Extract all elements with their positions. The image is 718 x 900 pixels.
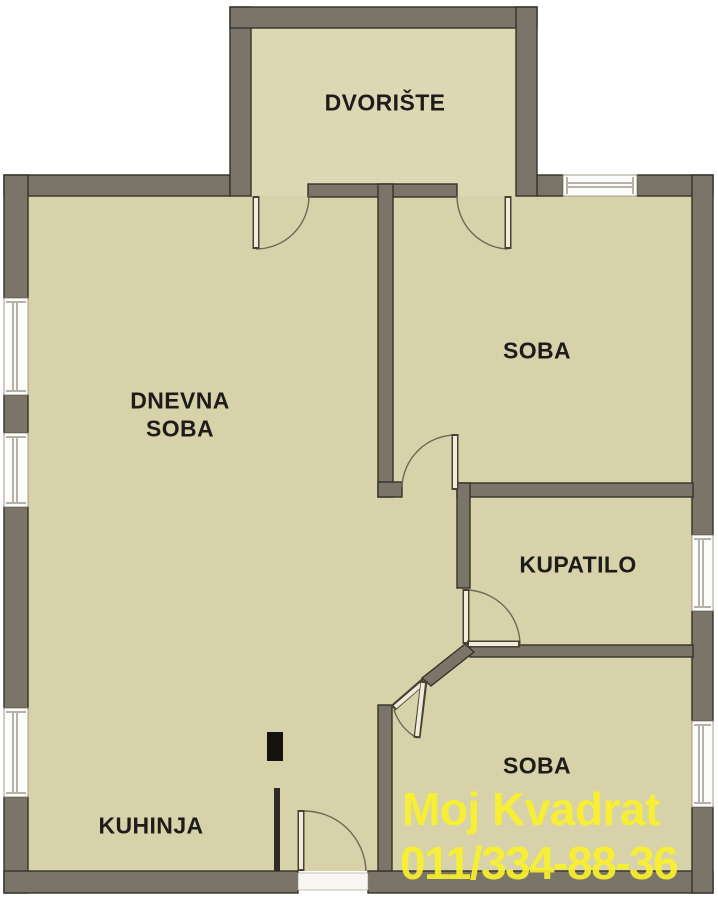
flue-marker — [267, 732, 283, 761]
wall-courtyard-top — [230, 7, 537, 28]
watermark-company: Moj Kvadrat — [402, 786, 660, 832]
floor-main — [25, 195, 692, 871]
label-soba-bottom: SOBA — [503, 753, 571, 780]
wall-soba-bottom-left — [378, 705, 392, 871]
label-soba-top: SOBA — [503, 338, 571, 365]
wall-left-pier — [4, 395, 28, 433]
floor-plan-drawing — [0, 0, 718, 900]
window-right-2 — [692, 721, 713, 807]
window-top — [563, 175, 637, 196]
wall-left-b — [4, 507, 28, 708]
wall-right-pier — [692, 611, 713, 721]
wall-top-right-a — [537, 175, 563, 196]
window-left-3 — [4, 708, 28, 797]
wall-soba-kupatilo — [457, 483, 693, 497]
floors-layer — [25, 28, 692, 871]
window-left-2 — [4, 433, 28, 507]
label-dnevna-soba-line1: DNEVNA — [130, 388, 230, 415]
watermark-phone: 011/334-88-36 — [400, 840, 677, 886]
window-left-1 — [4, 298, 28, 395]
wall-courtyard-right — [516, 7, 537, 196]
label-dvoriste: DVORIŠTE — [325, 90, 446, 117]
wall-kupatilo-left — [457, 483, 470, 588]
entrance-threshold — [298, 873, 368, 890]
wall-room-divider — [378, 184, 393, 497]
wall-right-a — [692, 175, 713, 535]
wall-bottom-a — [4, 871, 298, 893]
wall-room-divider-foot — [378, 482, 402, 497]
wall-courtyard-left — [230, 7, 251, 196]
window-right-1 — [692, 535, 713, 611]
wall-right-b — [692, 807, 713, 893]
label-kuhinja: KUHINJA — [98, 813, 203, 840]
kitchen-partition — [274, 788, 280, 871]
wall-top-left — [4, 175, 230, 196]
label-kupatilo: KUPATILO — [519, 552, 636, 579]
label-dnevna-soba-line2: SOBA — [146, 416, 214, 443]
floor-plan: DVORIŠTE DNEVNA SOBA SOBA KUPATILO SOBA … — [0, 0, 718, 900]
wall-left-a — [4, 175, 28, 298]
